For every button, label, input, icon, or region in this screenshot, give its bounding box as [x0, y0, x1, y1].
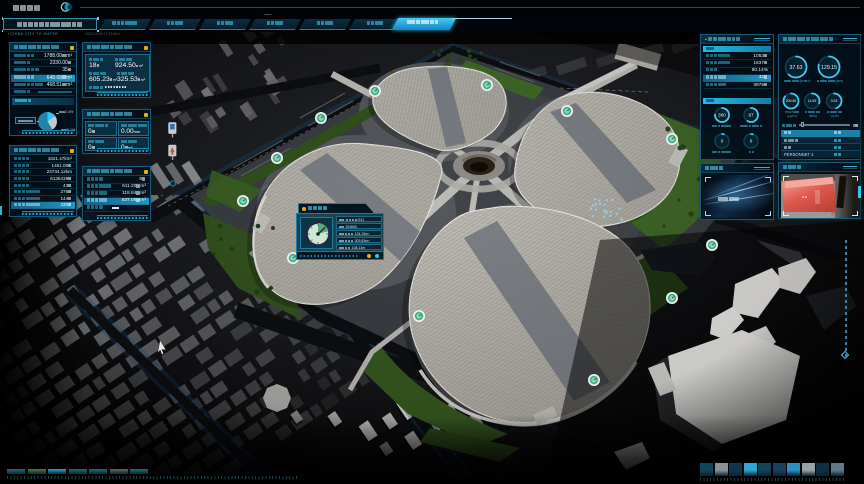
- svg-text:11.63: 11.63: [808, 99, 816, 103]
- svg-text:87: 87: [748, 113, 754, 118]
- svg-text:129.15: 129.15: [821, 65, 837, 71]
- svg-text:37.63: 37.63: [790, 65, 803, 71]
- svg-text:0: 0: [750, 139, 753, 144]
- svg-text:0.03: 0.03: [831, 99, 838, 103]
- svg-text:0: 0: [721, 139, 724, 144]
- svg-text:200.06: 200.06: [786, 99, 796, 103]
- svg-text:360: 360: [718, 113, 726, 118]
